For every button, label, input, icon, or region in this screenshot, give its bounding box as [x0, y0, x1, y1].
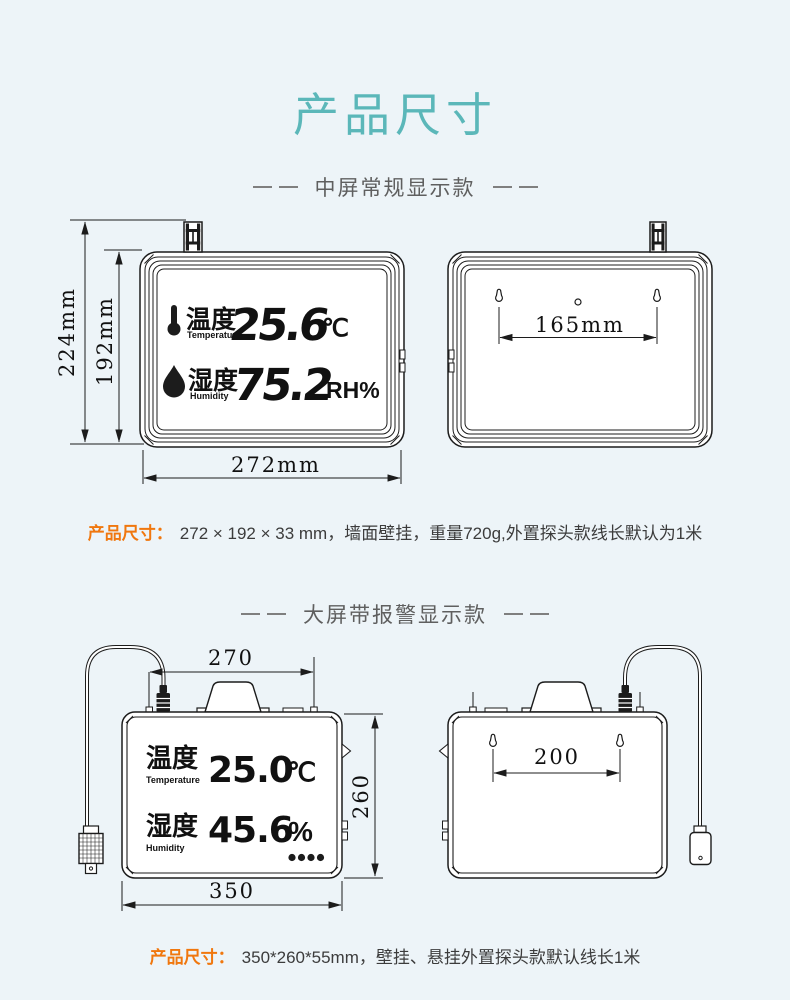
side-button: [449, 350, 454, 359]
hum-label: 湿度: [146, 811, 198, 841]
dim-bottom-width: 350: [209, 879, 255, 903]
dim-total-height: 224mm: [55, 287, 79, 377]
temp-unit: ℃: [287, 757, 316, 787]
temp-value: 25.0: [208, 750, 293, 791]
large-front-view: 温度 Temperature 25.0 ℃ 湿度 Humidity 45.6 %: [79, 647, 351, 878]
drawing-medium-model: 温度 Temperature 25.6 ℃ 湿度 Humidity 75.2 R…: [0, 210, 790, 510]
side-button: [400, 350, 405, 359]
spec-label-medium: 产品尺寸：: [88, 524, 173, 543]
cable-connector-icon: [619, 685, 633, 712]
product-dimensions-page: 产品尺寸 中屏常规显示款: [0, 0, 790, 1000]
spec-text-medium: 272 × 192 × 33 mm，墙面壁挂，重量720g,外置探头款线长默认为…: [180, 524, 702, 543]
side-bracket: [342, 744, 351, 758]
page-title: 产品尺寸: [0, 79, 790, 145]
spec-line-large: 产品尺寸：350*260*55mm，壁挂、悬挂外置探头款默认线长1米: [0, 943, 790, 968]
external-probe-icon: [79, 826, 103, 874]
external-probe-icon: [690, 826, 711, 865]
side-button: [400, 363, 405, 372]
hum-value: 75.2: [230, 360, 334, 411]
side-button: [342, 821, 348, 829]
dash-decoration: [253, 186, 298, 189]
section-heading-large: 大屏带报警显示款: [0, 599, 790, 629]
temp-value: 25.6: [226, 300, 331, 351]
dim-width: 272mm: [231, 453, 321, 477]
side-button: [342, 832, 348, 840]
spec-label-large: 产品尺寸：: [150, 948, 235, 967]
temp-unit: ℃: [322, 315, 349, 342]
section-heading-medium: 中屏常规显示款: [0, 172, 790, 202]
hum-sublabel: Humidity: [190, 391, 229, 401]
hum-unit: RH%: [326, 377, 380, 403]
alarm-dome-icon: [530, 682, 593, 712]
section-heading-large-label: 大屏带报警显示款: [303, 599, 487, 629]
cable-connector-icon: [157, 685, 171, 712]
temp-sublabel: Temperature: [146, 775, 200, 785]
side-button: [443, 821, 449, 829]
dash-decoration: [241, 613, 286, 616]
dim-hole-spacing: 200: [534, 745, 580, 769]
hum-sublabel: Humidity: [146, 843, 185, 853]
hum-value: 45.6: [208, 810, 293, 851]
side-button: [443, 832, 449, 840]
temp-label: 温度: [146, 743, 198, 773]
spec-line-medium: 产品尺寸：272 × 192 × 33 mm，墙面壁挂，重量720g,外置探头款…: [0, 519, 790, 544]
top-probe-icon: [184, 222, 202, 252]
section-heading-medium-label: 中屏常规显示款: [315, 172, 476, 202]
dim-height: 260: [349, 773, 373, 819]
spec-text-large: 350*260*55mm，壁挂、悬挂外置探头款默认线长1米: [242, 948, 641, 967]
dash-decoration: [493, 186, 538, 189]
drawing-large-model: 温度 Temperature 25.0 ℃ 湿度 Humidity 45.6 %…: [0, 630, 790, 920]
side-button: [449, 363, 454, 372]
dim-body-height: 192mm: [93, 296, 117, 386]
side-bracket: [440, 744, 449, 758]
top-probe-icon: [650, 222, 666, 252]
dim-top-width: 270: [208, 646, 254, 670]
dim-hole-spacing: 165mm: [535, 313, 625, 337]
alarm-dome-icon: [205, 682, 261, 712]
medium-front-view: 温度 Temperature 25.6 ℃ 湿度 Humidity 75.2 R…: [140, 222, 405, 447]
hum-unit: %: [288, 816, 313, 847]
dash-decoration: [504, 613, 549, 616]
